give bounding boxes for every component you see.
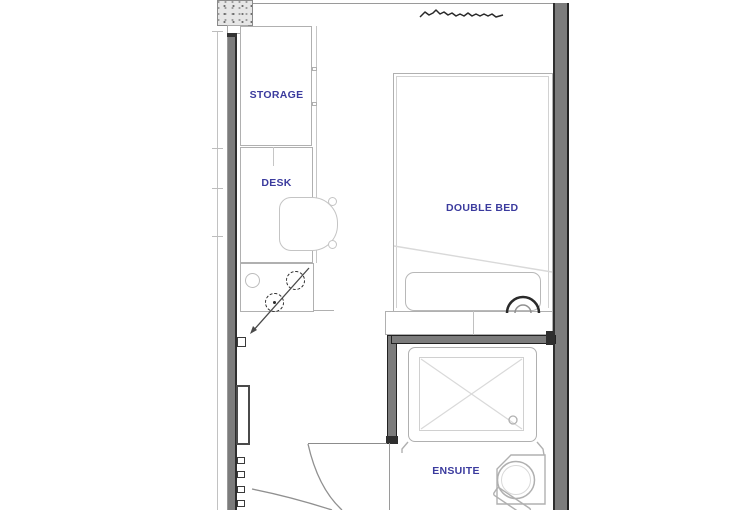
- linework-overlay: [0, 0, 740, 510]
- bed-headboard: [385, 311, 553, 335]
- wall-socket: [237, 486, 245, 493]
- leader-arrowhead: [250, 326, 257, 334]
- ensuite-label: ENSUITE: [426, 465, 486, 477]
- counter-return-line: [314, 310, 334, 311]
- storage-label: STORAGE: [240, 89, 313, 101]
- entrance-door-swing: [252, 489, 332, 510]
- right-wall: [553, 3, 569, 510]
- ensuite-door-swing: [308, 444, 342, 510]
- chair-armrest: [328, 240, 337, 249]
- ceiling-light-symbol: [286, 271, 305, 290]
- ensuite-north-wall: [391, 335, 556, 344]
- glazing-tick: [212, 188, 223, 189]
- wall-switch-box: [237, 337, 246, 347]
- desk-label: DESK: [240, 177, 313, 189]
- radiator-panel: [236, 385, 250, 445]
- shower-screen-left: [402, 442, 408, 453]
- glazing-tick: [212, 236, 223, 237]
- double-bed-label: DOUBLE BED: [446, 202, 516, 214]
- glazing-tick: [212, 148, 223, 149]
- bed-pillow: [405, 272, 541, 311]
- shelf-peg: [312, 102, 317, 106]
- ensuite-west-wall: [387, 335, 397, 443]
- shower-tray-inner: [419, 357, 524, 431]
- shelf-peg: [312, 67, 317, 71]
- glazing-tick: [212, 31, 223, 32]
- counter-circle-symbol: [245, 273, 260, 288]
- ensuite-door-jamb: [386, 436, 398, 444]
- wall-socket: [237, 457, 245, 464]
- top-boundary-line: [253, 3, 556, 4]
- wall-socket: [237, 471, 245, 478]
- basin-counter: [497, 455, 545, 504]
- wall-socket: [237, 500, 245, 507]
- floor-plan-canvas: STORAGE DESK DOUBLE BED ENSUITE: [0, 0, 740, 510]
- wash-basin: [498, 462, 535, 499]
- shower-screen-right: [537, 442, 544, 455]
- ensuite-door-leaf: [308, 443, 387, 444]
- squiggle-mark: [420, 10, 503, 17]
- light-symbol-dot: [273, 301, 276, 304]
- concrete-column: [217, 0, 253, 26]
- storage-unit: [240, 26, 312, 146]
- headboard-divider-line: [473, 311, 474, 335]
- left-glazing-line: [217, 31, 218, 510]
- left-wall-cap: [227, 33, 237, 37]
- ensuite-wall-corner: [546, 331, 555, 345]
- desk-divider-line: [273, 147, 274, 166]
- basin-tap: [493, 487, 531, 510]
- wash-basin-inner: [502, 466, 531, 495]
- chair-armrest: [328, 197, 337, 206]
- ensuite-door-line: [389, 443, 390, 510]
